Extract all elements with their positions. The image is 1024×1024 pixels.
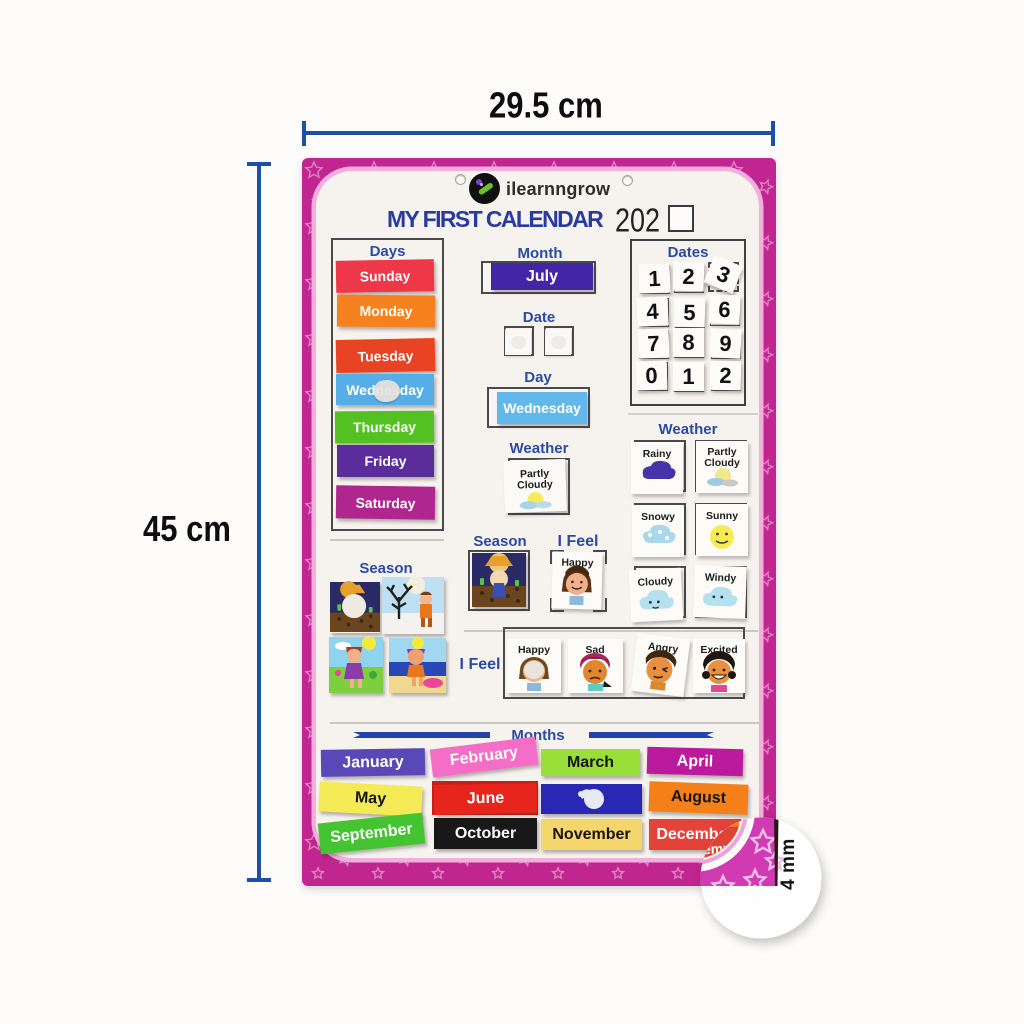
svg-text:Windy: Windy bbox=[705, 571, 737, 584]
svg-text:Rainy: Rainy bbox=[643, 448, 672, 460]
svg-text:Cloudy: Cloudy bbox=[517, 478, 553, 491]
svg-text:Cloudy: Cloudy bbox=[637, 575, 673, 589]
svg-text:Cloudy: Cloudy bbox=[704, 457, 740, 469]
svg-text:Happy: Happy bbox=[518, 644, 550, 656]
svg-text:4 mm: 4 mm bbox=[778, 838, 799, 890]
svg-text:Sunny: Sunny bbox=[706, 510, 738, 522]
svg-text:Snowy: Snowy bbox=[641, 511, 675, 523]
